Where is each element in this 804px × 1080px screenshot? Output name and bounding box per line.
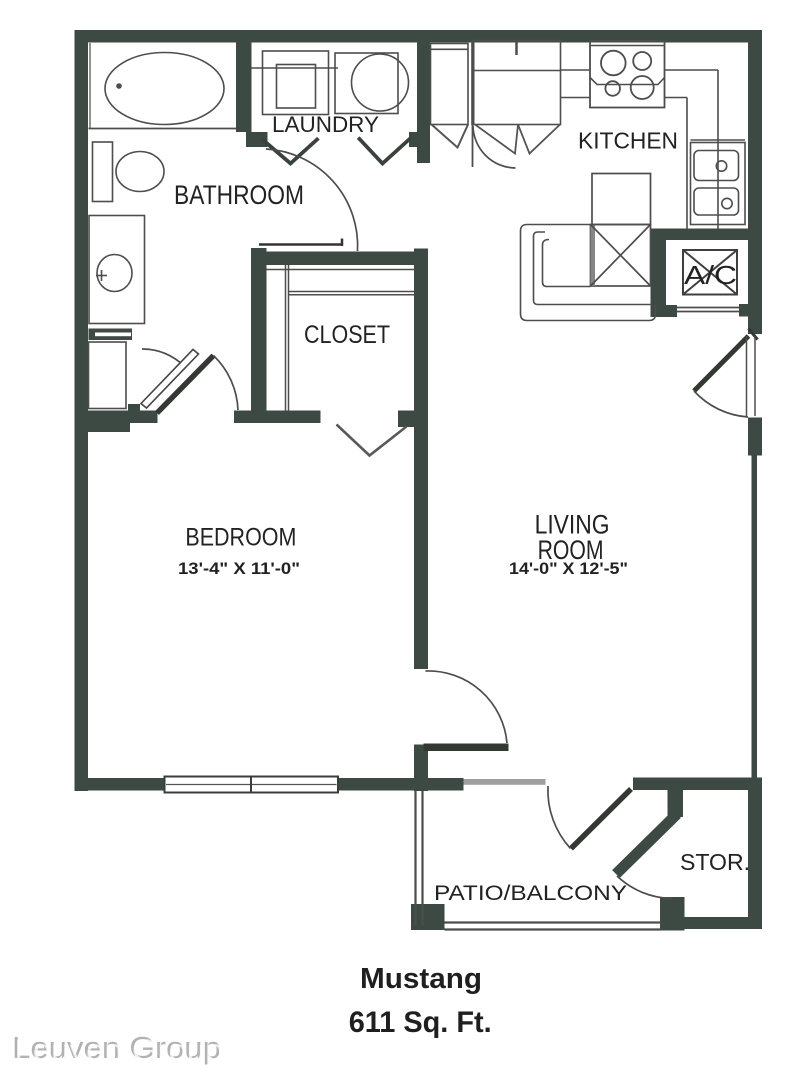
svg-text:STOR.: STOR. [680,849,750,875]
svg-text:PATIO/BALCONY: PATIO/BALCONY [434,882,627,905]
svg-text:13'-4" X 11'-0": 13'-4" X 11'-0" [178,559,300,578]
svg-text:Leuven Group: Leuven Group [15,1033,224,1068]
svg-text:Mustang: Mustang [360,963,482,995]
svg-text:CLOSET: CLOSET [304,321,390,349]
svg-text:KITCHEN: KITCHEN [578,128,678,154]
svg-text:LAUNDRY: LAUNDRY [272,112,379,137]
svg-text:611 Sq. Ft.: 611 Sq. Ft. [349,1006,492,1039]
svg-text:BATHROOM: BATHROOM [174,180,304,210]
svg-text:14'-0" X 12'-5": 14'-0" X 12'-5" [509,559,628,578]
svg-text:BEDROOM: BEDROOM [185,524,296,552]
svg-text:A/C: A/C [684,260,737,290]
